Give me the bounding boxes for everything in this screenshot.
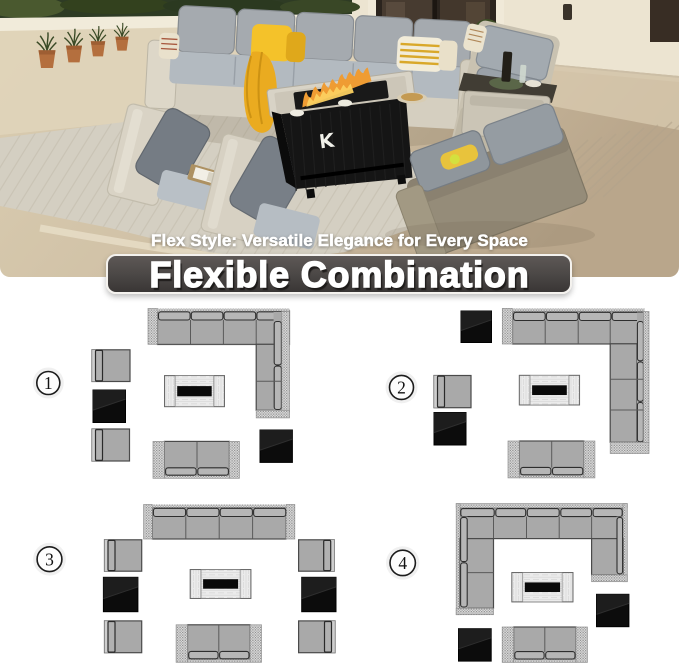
svg-text:1: 1 bbox=[44, 373, 53, 393]
svg-text:3: 3 bbox=[45, 549, 54, 569]
svg-text:4: 4 bbox=[398, 553, 407, 573]
svg-text:2: 2 bbox=[397, 378, 406, 398]
